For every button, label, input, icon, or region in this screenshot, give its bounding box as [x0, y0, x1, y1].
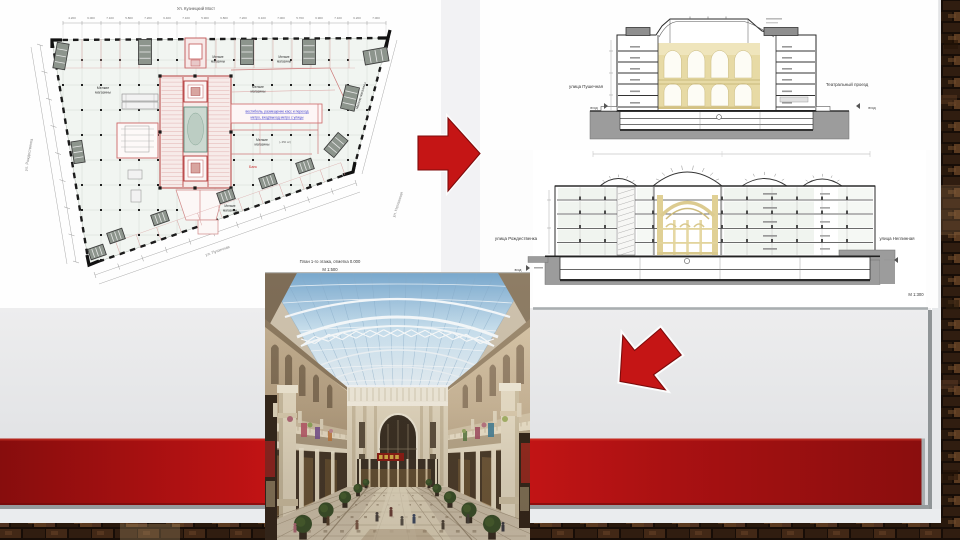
svg-text:План 1-го этажа, отметка 0.000: План 1-го этажа, отметка 0.000: [300, 259, 361, 264]
svg-text:Театральный проезд: Театральный проезд: [826, 82, 869, 87]
svg-text:5.900: 5.900: [201, 16, 209, 20]
svg-text:магазины: магазины: [95, 91, 111, 95]
svg-text:вход: вход: [868, 106, 875, 110]
svg-text:4.200: 4.200: [68, 16, 76, 20]
svg-text:Мелкие: Мелкие: [224, 204, 235, 208]
svg-text:метро, вход/выход метро с улиц: метро, вход/выход метро с улицы: [250, 116, 304, 120]
svg-text:улица Пушечная: улица Пушечная: [569, 84, 604, 89]
svg-text:7.100: 7.100: [182, 16, 190, 20]
svg-text:вход: вход: [590, 106, 597, 110]
svg-text:Мелкие: Мелкие: [212, 55, 223, 59]
svg-text:магазины: магазины: [255, 143, 271, 147]
svg-text:7.200: 7.200: [144, 16, 152, 20]
svg-text:Мелкие: Мелкие: [278, 55, 289, 59]
svg-text:Ул. Кузнецкий Мост: Ул. Кузнецкий Мост: [177, 6, 215, 11]
svg-text:6.800: 6.800: [220, 16, 228, 20]
svg-text:7.000: 7.000: [372, 16, 380, 20]
svg-text:5.700: 5.700: [296, 16, 304, 20]
svg-text:6.900: 6.900: [315, 16, 323, 20]
svg-text:5.800: 5.800: [125, 16, 133, 20]
svg-text:Мелкие: Мелкие: [97, 86, 110, 90]
svg-text:(~350 м²): (~350 м²): [279, 140, 291, 144]
svg-text:М 1:500: М 1:500: [322, 267, 338, 272]
svg-text:магазины: магазины: [211, 60, 226, 64]
svg-text:магазины: магазины: [277, 60, 292, 64]
svg-text:Мелкие: Мелкие: [252, 85, 264, 89]
svg-text:вестибюль, размещение касс и п: вестибюль, размещение касс и переход: [245, 110, 308, 114]
svg-text:улица Рождественка: улица Рождественка: [495, 236, 538, 241]
svg-text:Банк: Банк: [249, 165, 257, 169]
svg-text:М 1:300: М 1:300: [908, 292, 924, 297]
svg-text:7.200: 7.200: [239, 16, 247, 20]
svg-text:магазины: магазины: [223, 209, 238, 213]
svg-text:вход: вход: [515, 268, 522, 272]
svg-text:6.100: 6.100: [258, 16, 266, 20]
svg-text:6.000: 6.000: [87, 16, 95, 20]
svg-text:7.000: 7.000: [277, 16, 285, 20]
svg-text:7.100: 7.100: [106, 16, 114, 20]
svg-text:7.100: 7.100: [334, 16, 342, 20]
svg-text:улица Неглинная: улица Неглинная: [879, 236, 915, 241]
svg-text:Мелкие: Мелкие: [256, 138, 268, 142]
svg-text:6.400: 6.400: [163, 16, 171, 20]
svg-text:6.200: 6.200: [353, 16, 361, 20]
svg-text:магазины: магазины: [251, 90, 267, 94]
